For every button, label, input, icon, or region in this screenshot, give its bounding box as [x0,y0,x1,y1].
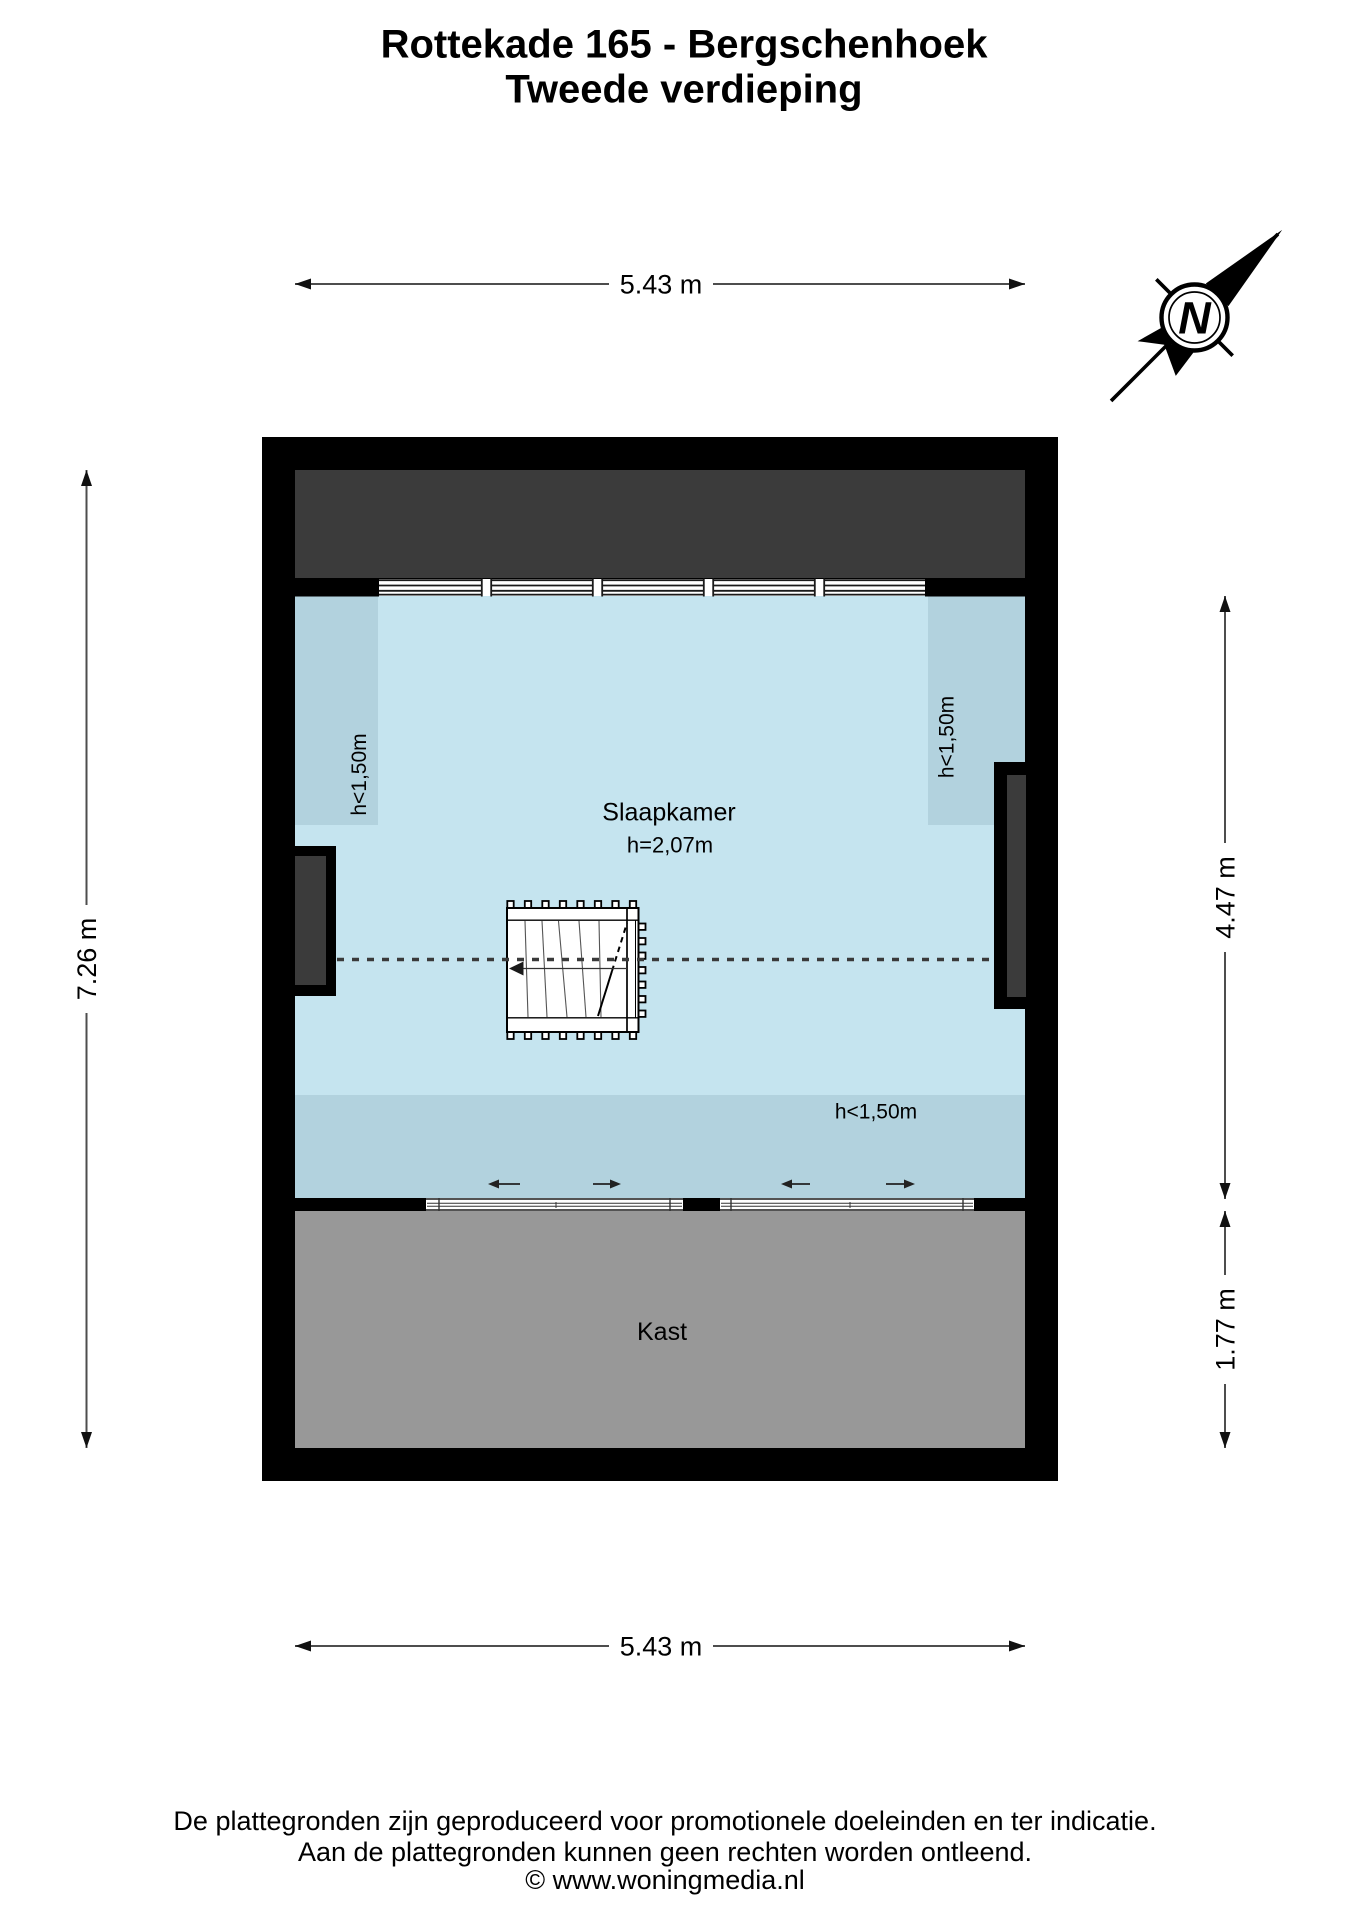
svg-text:h<1,50m: h<1,50m [936,696,959,778]
svg-text:N: N [1178,293,1212,344]
svg-text:h<1,50m: h<1,50m [835,1101,917,1124]
svg-text:Rottekade 165 - Bergschenhoek: Rottekade 165 - Bergschenhoek [381,23,989,67]
svg-text:h=2,07m: h=2,07m [627,833,713,858]
svg-text:5.43 m: 5.43 m [620,1632,703,1662]
svg-text:De plattegronden zijn geproduc: De plattegronden zijn geproduceerd voor … [173,1806,1156,1836]
svg-text:Aan de plattegronden kunnen ge: Aan de plattegronden kunnen geen rechten… [298,1837,1032,1867]
svg-text:Slaapkamer: Slaapkamer [602,799,735,827]
svg-text:1.77 m: 1.77 m [1211,1288,1241,1371]
svg-text:5.43 m: 5.43 m [620,270,703,300]
svg-text:© www.woningmedia.nl: © www.woningmedia.nl [525,1865,805,1895]
svg-text:Kast: Kast [637,1318,687,1346]
svg-text:Tweede verdieping: Tweede verdieping [505,68,862,112]
svg-text:4.47 m: 4.47 m [1211,856,1241,939]
svg-text:7.26 m: 7.26 m [72,918,102,1001]
svg-text:h<1,50m: h<1,50m [348,733,371,815]
